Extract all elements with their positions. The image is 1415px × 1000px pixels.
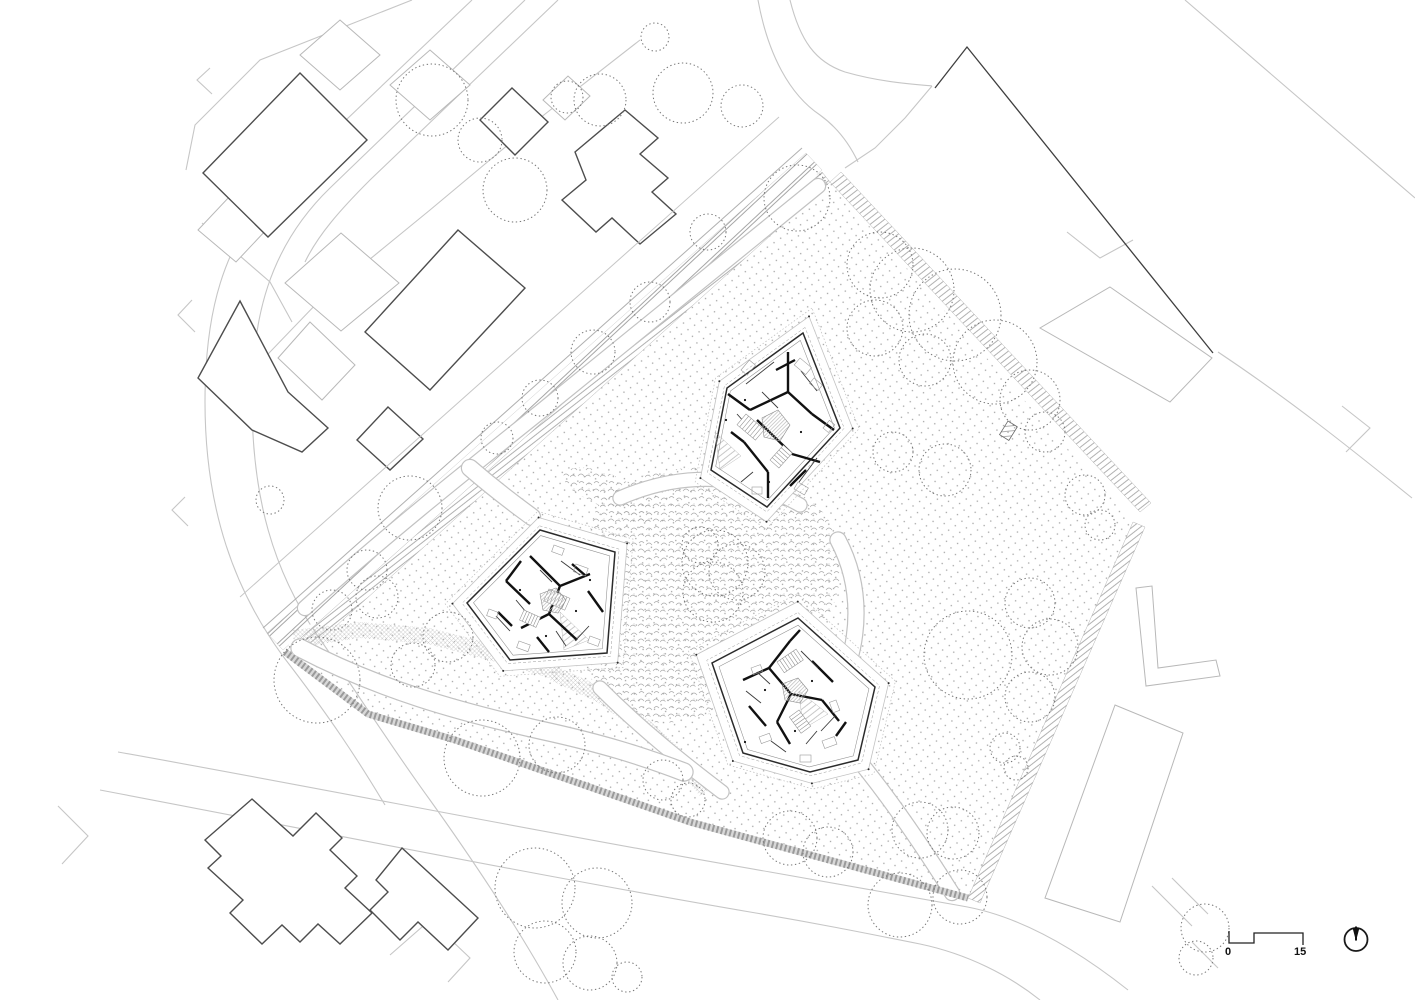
road-line	[1172, 878, 1208, 914]
site-plan: 0 15	[0, 0, 1415, 1000]
column-dot	[575, 610, 577, 612]
column-dot	[794, 730, 796, 732]
terrace-corner-dot	[617, 662, 619, 664]
column-dot	[764, 689, 766, 691]
tree	[495, 848, 575, 928]
road-line	[172, 497, 188, 526]
terrace-corner-dot	[732, 760, 734, 762]
terrace-corner-dot	[451, 603, 453, 605]
tree	[256, 486, 284, 514]
column-dot	[800, 431, 802, 433]
tree	[514, 921, 576, 983]
column-dot	[811, 680, 813, 682]
column-dot	[545, 635, 547, 637]
scale-label-zero: 0	[1225, 947, 1231, 958]
tree	[562, 868, 632, 938]
context-building	[370, 848, 478, 950]
context-building	[205, 799, 372, 944]
road-line	[845, 86, 932, 168]
context-building	[365, 230, 525, 390]
road-line	[197, 68, 212, 94]
column-dot	[744, 399, 746, 401]
site-plan-drawing	[0, 0, 1415, 1000]
context-building	[300, 20, 380, 90]
road-line	[1192, 942, 1218, 968]
context-building	[1040, 287, 1212, 402]
tree	[641, 23, 669, 51]
context-building	[1045, 705, 1183, 922]
terrace-corner-dot	[868, 768, 870, 770]
road-line	[758, 0, 858, 162]
tree	[653, 63, 713, 123]
terrace-corner-dot	[766, 521, 768, 523]
terrace-corner-dot	[695, 654, 697, 656]
tree	[483, 158, 547, 222]
context-building	[480, 88, 548, 155]
road-line	[1185, 0, 1415, 198]
terrace-corner-dot	[811, 782, 813, 784]
terrace-corner-dot	[852, 428, 854, 430]
road-line	[1067, 232, 1133, 258]
context-building	[278, 322, 355, 400]
column-dot	[725, 419, 727, 421]
street-boundary-line	[935, 47, 1213, 353]
column-dot	[768, 481, 770, 483]
terrace-corner-dot	[626, 542, 628, 544]
road-line	[178, 300, 195, 332]
terrace-corner-dot	[888, 682, 890, 684]
road-line	[58, 806, 88, 864]
road-line	[790, 0, 932, 86]
tree	[563, 936, 617, 990]
tree	[612, 962, 642, 992]
context-building	[390, 50, 470, 120]
terrace-corner-dot	[718, 380, 720, 382]
scale-label-fifteen: 15	[1294, 947, 1306, 958]
terrace-corner-dot	[808, 315, 810, 317]
terrace-corner-dot	[797, 601, 799, 603]
tree	[458, 118, 502, 162]
scale-bar	[1229, 931, 1303, 945]
terrace-corner-dot	[502, 670, 504, 672]
terrace-corner-dot	[538, 516, 540, 518]
context-building	[357, 407, 423, 470]
context-building	[1136, 586, 1220, 686]
column-dot	[519, 589, 521, 591]
tree	[721, 85, 763, 127]
column-dot	[589, 579, 591, 581]
road-line	[1218, 352, 1412, 498]
column-dot	[744, 741, 746, 743]
terrace-corner-dot	[699, 477, 701, 479]
